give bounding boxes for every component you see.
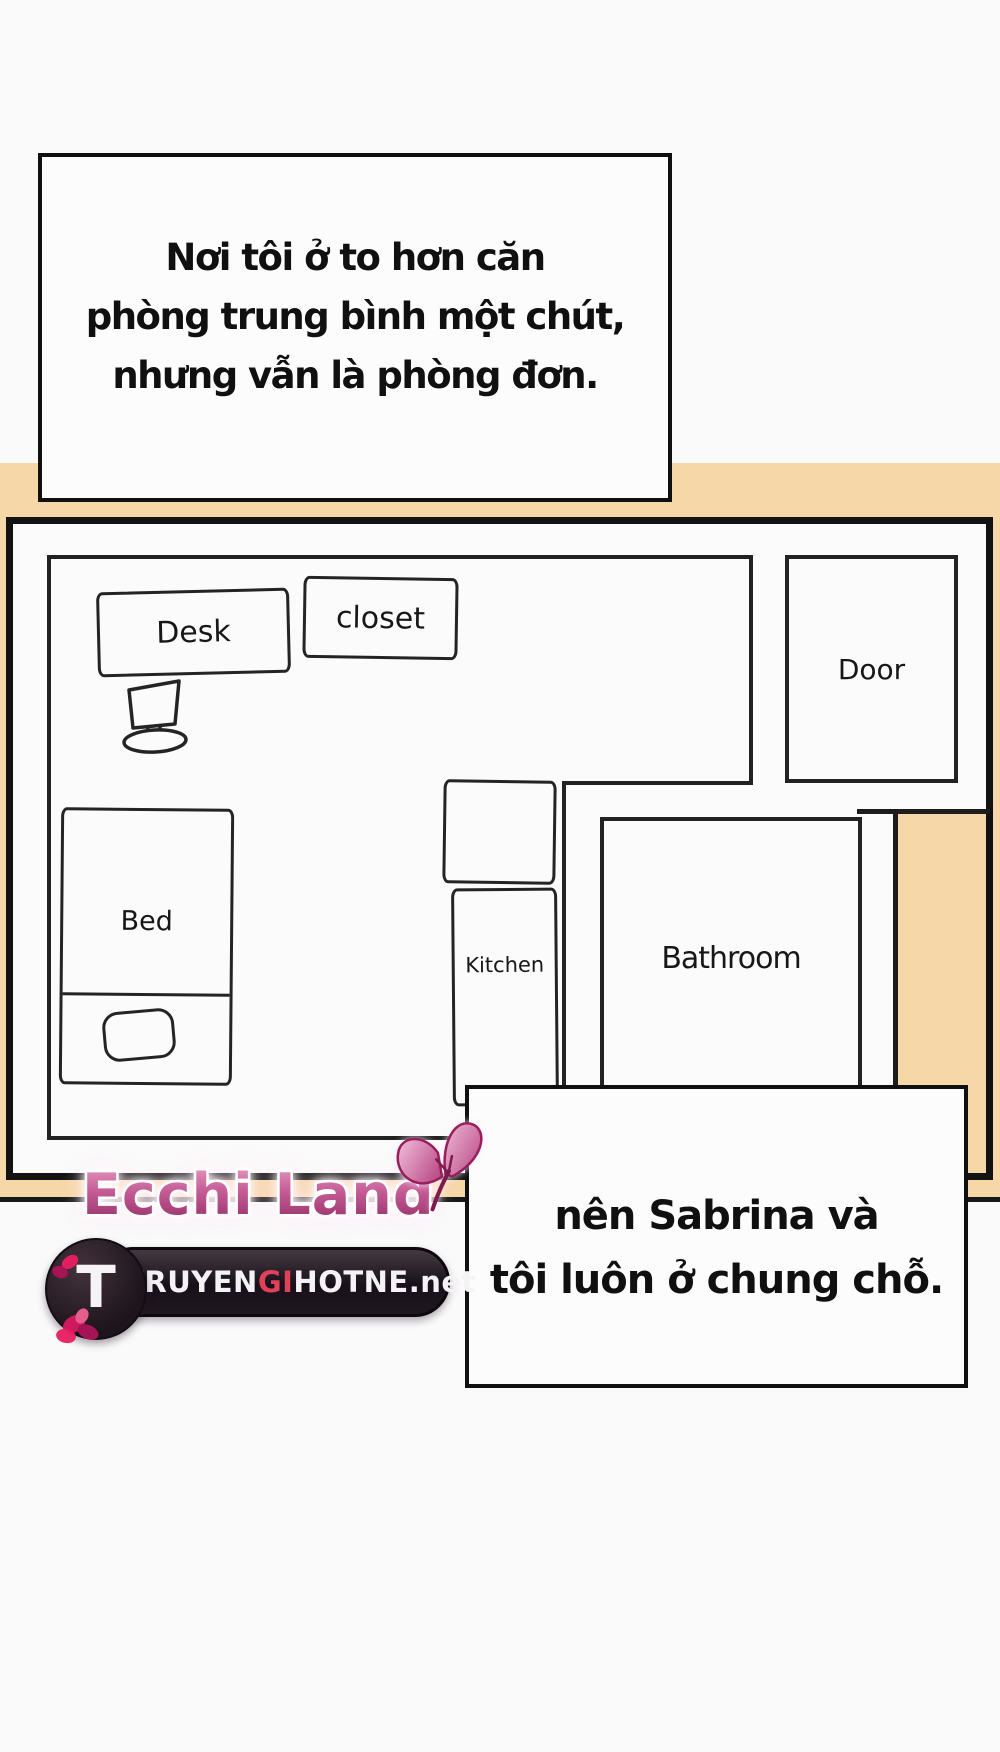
- room-door-label: Door: [838, 653, 905, 686]
- wall-segment: [749, 555, 753, 785]
- bed-divider-line: [63, 992, 230, 996]
- speech-text-line: nhưng vẫn là phòng đơn.: [112, 346, 597, 405]
- wall-segment: [47, 555, 753, 559]
- speech-box-2: nên Sabrina và tôi luôn ở chung chỗ.: [465, 1085, 968, 1388]
- room-bathroom-label: Bathroom: [661, 941, 800, 976]
- speech-text-line: Nơi tôi ở to hơn căn: [165, 228, 544, 287]
- kitchen-label: Kitchen: [465, 953, 544, 978]
- logo-name-tld: .net: [409, 1265, 476, 1299]
- speech-box-1: Nơi tôi ở to hơn căn phòng trung bình mộ…: [38, 153, 672, 502]
- closet-label: closet: [336, 600, 426, 636]
- logo-initial-letter: T: [76, 1253, 116, 1321]
- watermark-logo-circle: T: [45, 1238, 147, 1340]
- butterfly-icon: [394, 1114, 494, 1220]
- wall-segment: [562, 781, 753, 785]
- watermark-logo-pill: TRUYENGIHOTNE.net: [98, 1247, 450, 1317]
- pillow: [101, 1007, 177, 1063]
- logo-name-highlight: GI: [258, 1265, 294, 1299]
- speech-text-line: nên Sabrina và: [554, 1184, 878, 1248]
- room-bathroom: Bathroom: [600, 817, 862, 1100]
- kitchen-box: Kitchen: [451, 888, 559, 1107]
- bed-label: Bed: [120, 906, 173, 937]
- logo-name-part: HOTNE: [293, 1265, 408, 1299]
- comic-page: { "page": { "background_color": "#fafafa…: [0, 0, 1000, 1752]
- kitchen-counter-box: [442, 779, 556, 885]
- watermark-site-name-text: Ecchi Land: [82, 1162, 435, 1228]
- closet-box: closet: [302, 576, 458, 660]
- room-door: Door: [785, 555, 958, 783]
- speech-text-line: tôi luôn ở chung chỗ.: [490, 1248, 943, 1312]
- computer-monitor-icon: [113, 676, 201, 754]
- speech-text-line: phòng trung bình một chút,: [86, 287, 625, 346]
- desk-box: Desk: [96, 588, 291, 678]
- wall-segment: [47, 555, 51, 1140]
- desk-label: Desk: [156, 614, 231, 651]
